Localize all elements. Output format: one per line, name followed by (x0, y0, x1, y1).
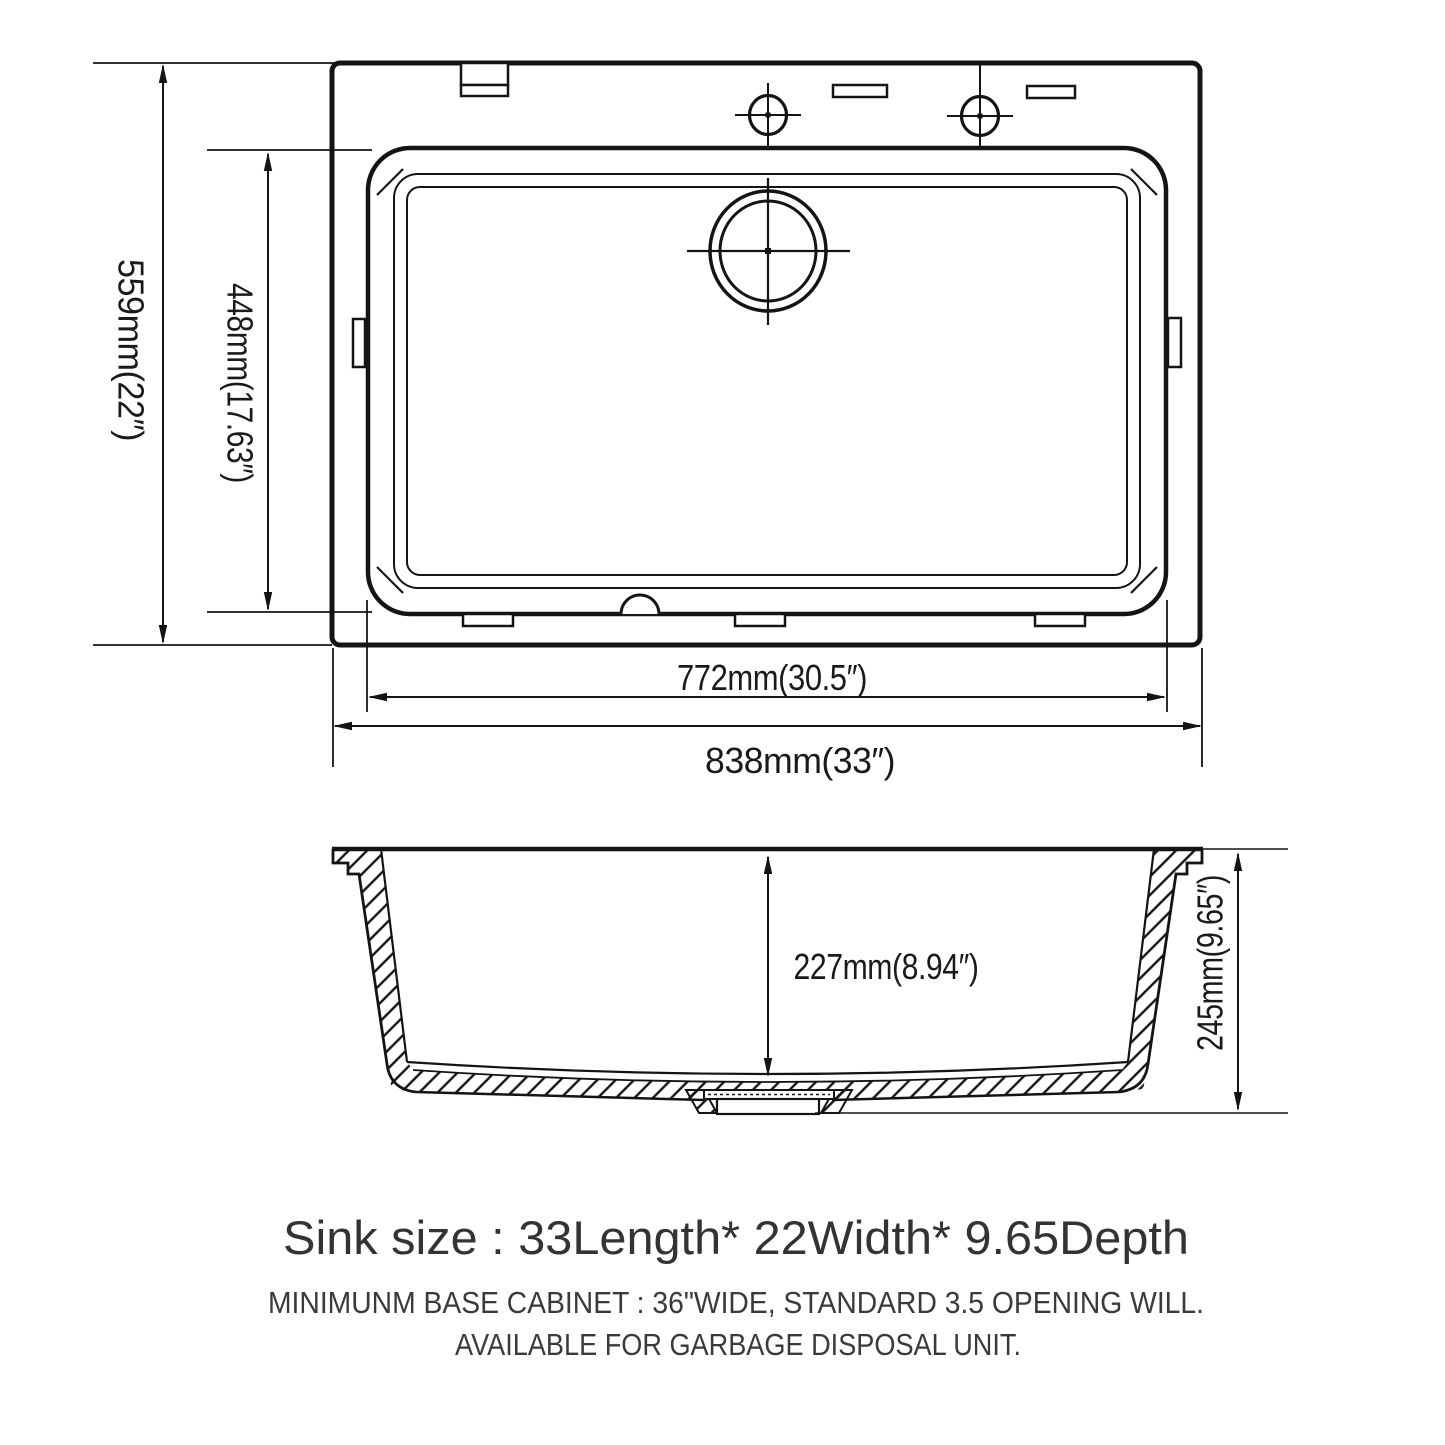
arrowhead-up (159, 64, 167, 83)
mounting-clip-top-lip (461, 85, 508, 96)
arrowhead-right (1147, 693, 1166, 701)
arrowhead-left (368, 693, 387, 701)
arrowhead-up (264, 152, 272, 171)
dim-label-overall-width: 559mm(22″) (111, 259, 152, 441)
bottom-clip-1 (463, 614, 513, 626)
arrowhead-down (159, 625, 167, 644)
drain-center-mark (765, 248, 771, 254)
drain-outlet-box (717, 1099, 819, 1114)
arrowhead-left (333, 722, 352, 730)
cabinet-note: MINIMUNM BASE CABINET : 36"WIDE, STANDAR… (268, 1285, 1204, 1320)
dim-label-inner-depth: 227mm(8.94″) (794, 946, 979, 987)
arrowhead-down (264, 592, 272, 611)
dim-label-overall-depth: 245mm(9.65″) (1190, 875, 1231, 1051)
mounting-clip-top (461, 63, 508, 85)
bottom-clip-2 (735, 614, 785, 626)
dim-label-overall-length: 838mm(33″) (705, 740, 895, 781)
disposal-note: AVAILABLE FOR GARBAGE DISPOSAL UNIT. (455, 1327, 1021, 1362)
sink-outer-rim (332, 63, 1200, 645)
dim-label-inner-length: 772mm(30.5″) (677, 657, 867, 698)
faucet-hole-right-center-mark (978, 114, 983, 119)
arrowhead-right (1183, 722, 1202, 730)
drain-fitting (686, 1090, 852, 1114)
bottom-clip-3 (1035, 614, 1085, 626)
sink-dimension-drawing: 559mm(22″) 448mm(17.63″) 772mm(30.5″) 83… (0, 0, 1445, 1445)
sink-size-title: Sink size : 33Length* 22Width* 9.65Depth (283, 1211, 1189, 1264)
drawing-canvas: 559mm(22″) 448mm(17.63″) 772mm(30.5″) 83… (0, 0, 1445, 1445)
arrowhead-up (1234, 852, 1242, 871)
notes-block: Sink size : 33Length* 22Width* 9.65Depth… (268, 1211, 1204, 1362)
side-clip-right (1168, 318, 1181, 367)
left-wall-hatch (333, 849, 417, 1092)
arrowhead-up (764, 855, 772, 874)
side-clip-left (353, 319, 365, 367)
dim-label-inner-width: 448mm(17.63″) (220, 283, 261, 483)
arrowhead-down (1234, 1092, 1242, 1111)
dim-559 (159, 64, 167, 644)
dim-227 (764, 855, 772, 1077)
dim-448 (264, 152, 272, 611)
faucet-hole-left-center-mark (766, 113, 771, 118)
